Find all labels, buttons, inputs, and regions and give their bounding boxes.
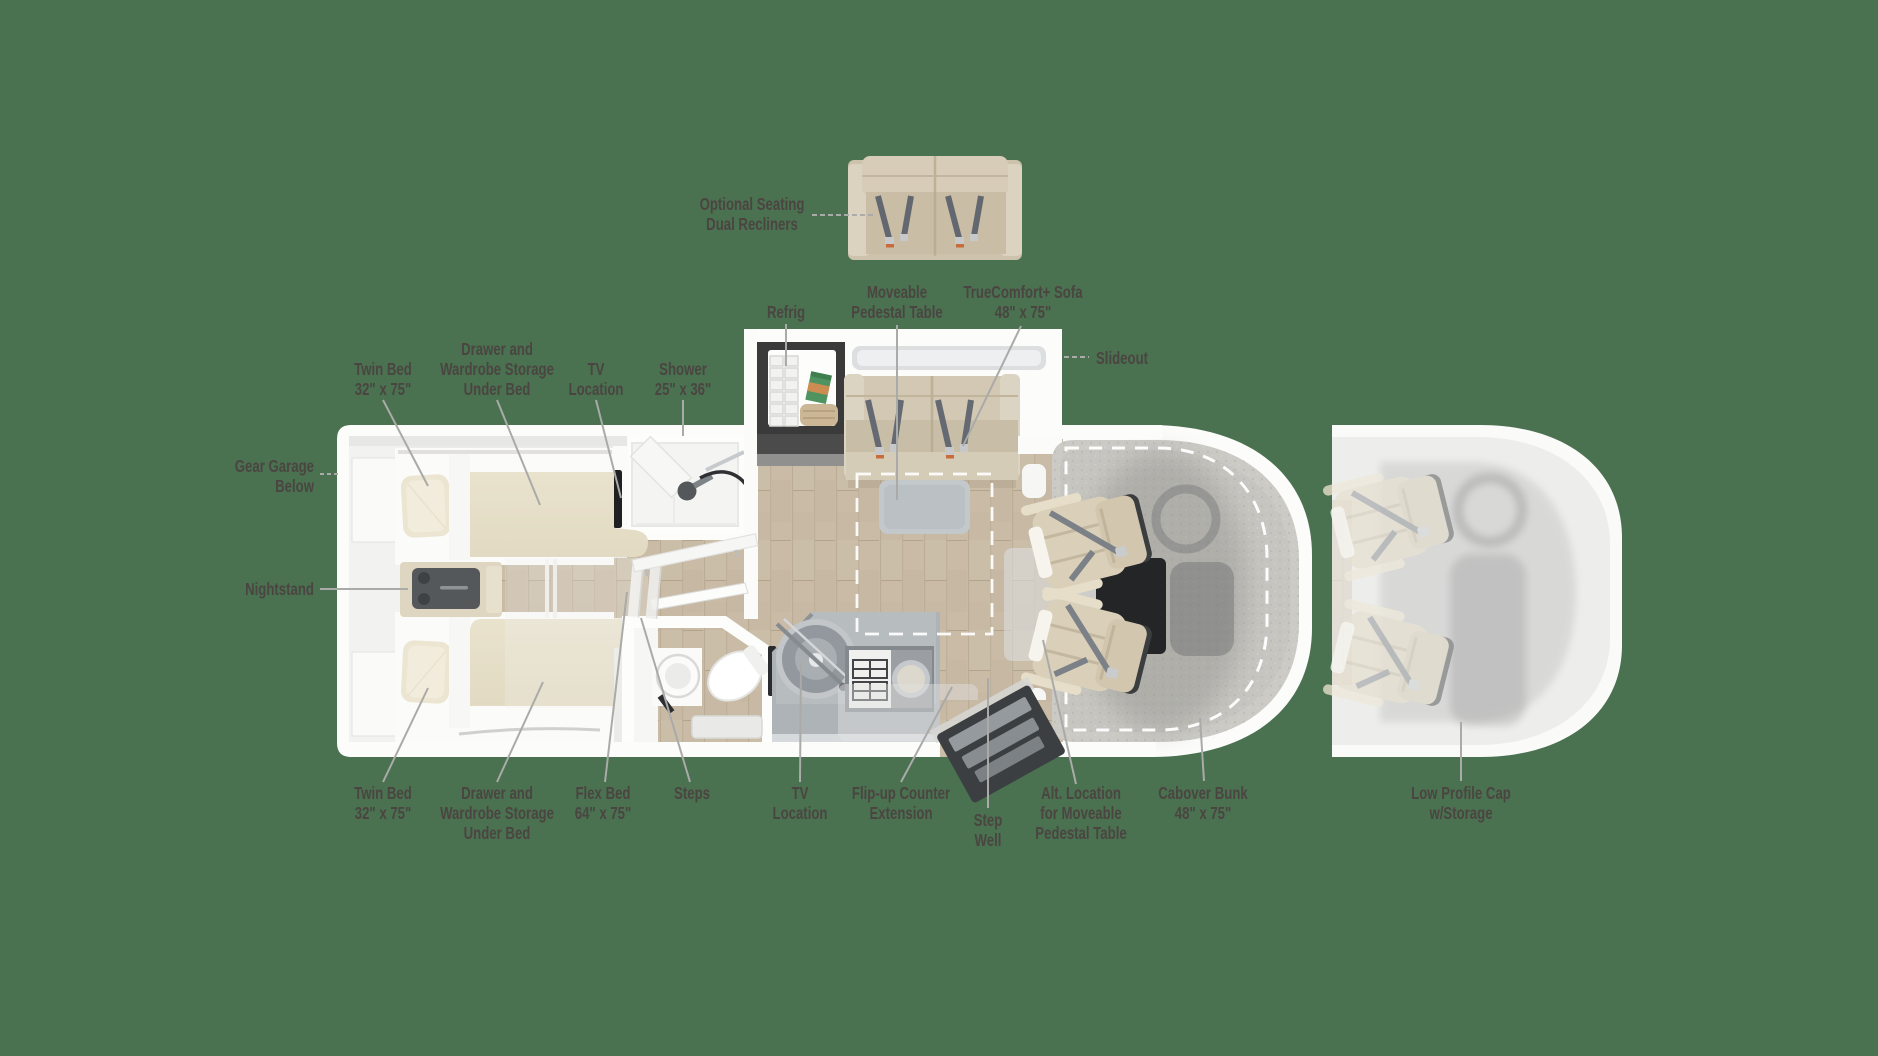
svg-text:32" x 75": 32" x 75" (355, 804, 412, 823)
svg-text:Drawer and: Drawer and (461, 784, 533, 803)
svg-text:Low Profile Cap: Low Profile Cap (1411, 784, 1511, 803)
svg-text:TV: TV (588, 360, 605, 379)
svg-text:48" x 75": 48" x 75" (1175, 804, 1232, 823)
svg-text:Under Bed: Under Bed (464, 380, 531, 399)
svg-text:Below: Below (275, 477, 315, 496)
svg-text:Pedestal Table: Pedestal Table (851, 303, 943, 322)
svg-text:25" x 36": 25" x 36" (655, 380, 712, 399)
svg-text:Wardrobe Storage: Wardrobe Storage (440, 360, 554, 379)
svg-text:Shower: Shower (659, 360, 707, 379)
svg-text:Moveable: Moveable (867, 283, 927, 302)
svg-text:TV: TV (792, 784, 809, 803)
svg-text:w/Storage: w/Storage (1429, 804, 1493, 823)
svg-text:Step: Step (974, 811, 1003, 830)
svg-text:Location: Location (569, 380, 624, 399)
svg-text:Gear Garage: Gear Garage (235, 457, 314, 476)
svg-text:32" x 75": 32" x 75" (355, 380, 412, 399)
svg-text:Dual Recliners: Dual Recliners (706, 215, 798, 234)
svg-text:Slideout: Slideout (1096, 349, 1148, 368)
svg-text:Alt. Location: Alt. Location (1041, 784, 1121, 803)
svg-text:Cabover Bunk: Cabover Bunk (1158, 784, 1248, 803)
svg-text:Wardrobe Storage: Wardrobe Storage (440, 804, 554, 823)
svg-text:for Moveable: for Moveable (1040, 804, 1122, 823)
svg-text:Nightstand: Nightstand (245, 580, 314, 599)
svg-text:Optional Seating: Optional Seating (700, 195, 805, 214)
svg-text:64" x 75": 64" x 75" (575, 804, 632, 823)
svg-text:48" x 75": 48" x 75" (995, 303, 1052, 322)
svg-text:Flex Bed: Flex Bed (576, 784, 631, 803)
svg-text:Twin Bed: Twin Bed (354, 360, 412, 379)
svg-text:Flip-up Counter: Flip-up Counter (852, 784, 950, 803)
svg-text:Well: Well (975, 831, 1002, 850)
svg-text:Location: Location (773, 804, 828, 823)
svg-text:Refrig: Refrig (767, 303, 805, 322)
svg-text:Twin Bed: Twin Bed (354, 784, 412, 803)
svg-text:TrueComfort+ Sofa: TrueComfort+ Sofa (963, 283, 1082, 302)
svg-text:Drawer and: Drawer and (461, 340, 533, 359)
svg-text:Under Bed: Under Bed (464, 824, 531, 843)
svg-text:Extension: Extension (869, 804, 932, 823)
svg-text:Pedestal Table: Pedestal Table (1035, 824, 1127, 843)
svg-text:Steps: Steps (674, 784, 710, 803)
